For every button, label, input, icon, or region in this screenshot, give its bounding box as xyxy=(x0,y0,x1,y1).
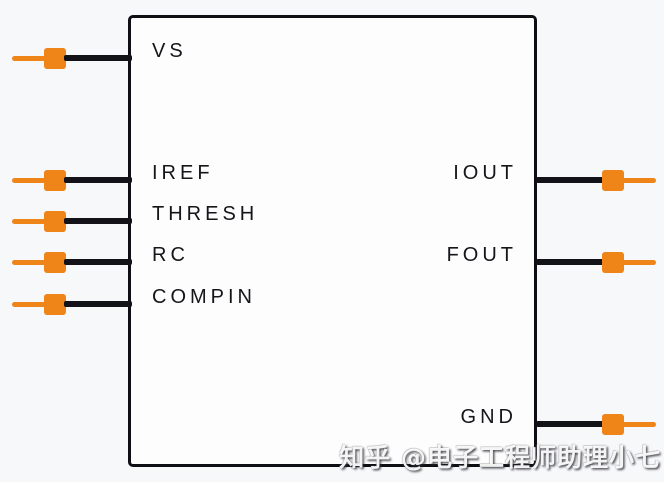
pin-wire xyxy=(536,421,604,427)
pin-wire xyxy=(64,259,132,265)
schematic-canvas: VS IREF THRESH RC COMPIN IOUT FOUT xyxy=(0,0,664,482)
zhihu-watermark: 知乎 @电子工程师助理小七 xyxy=(339,438,661,474)
pin-lead-icon xyxy=(12,260,46,265)
pin-connector-icon xyxy=(44,294,66,315)
pin-wire xyxy=(64,218,132,224)
pin-connector-icon xyxy=(44,170,66,191)
pin-wire xyxy=(536,259,604,265)
pin-wire xyxy=(64,301,132,307)
pin-label-compin: COMPIN xyxy=(152,285,256,309)
pin-lead-icon xyxy=(622,260,656,265)
pin-label-thresh: THRESH xyxy=(152,202,258,226)
pin-connector-icon xyxy=(44,252,66,273)
pin-label-iout: IOUT xyxy=(337,161,517,185)
pin-connector-icon xyxy=(44,211,66,232)
pin-connector-icon xyxy=(602,414,624,435)
pin-lead-icon xyxy=(622,422,656,427)
pin-lead-icon xyxy=(12,178,46,183)
pin-label-fout: FOUT xyxy=(337,243,517,267)
pin-lead-icon xyxy=(12,302,46,307)
pin-connector-icon xyxy=(602,252,624,273)
pin-label-vs: VS xyxy=(152,39,187,63)
chip-outline xyxy=(128,15,537,467)
pin-label-iref: IREF xyxy=(152,161,214,185)
pin-lead-icon xyxy=(622,178,656,183)
pin-wire xyxy=(64,177,132,183)
pin-label-compin: RC xyxy=(152,243,189,267)
pin-lead-icon xyxy=(12,56,46,61)
pin-wire xyxy=(64,55,132,61)
pin-connector-icon xyxy=(44,48,66,69)
pin-label-gnd: GND xyxy=(337,405,517,429)
pin-connector-icon xyxy=(602,170,624,191)
pin-lead-icon xyxy=(12,219,46,224)
pin-wire xyxy=(536,177,604,183)
